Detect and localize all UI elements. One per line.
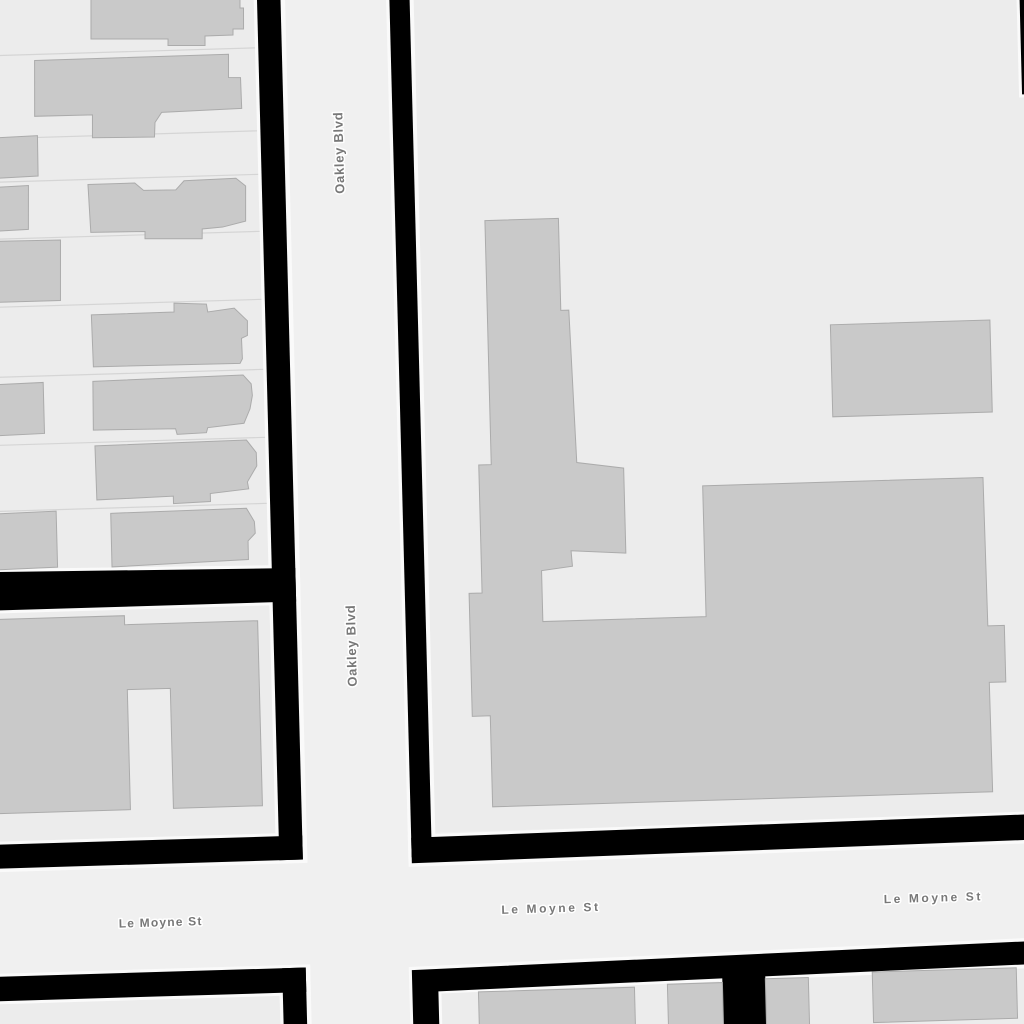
svg-text:Le Moyne St: Le Moyne St <box>884 889 984 906</box>
svg-text:Oakley Blvd: Oakley Blvd <box>330 111 347 194</box>
svg-text:Le Moyne St: Le Moyne St <box>119 914 203 931</box>
svg-text:Oakley Blvd: Oakley Blvd <box>343 604 360 687</box>
svg-text:Le Moyne St: Le Moyne St <box>501 900 601 917</box>
